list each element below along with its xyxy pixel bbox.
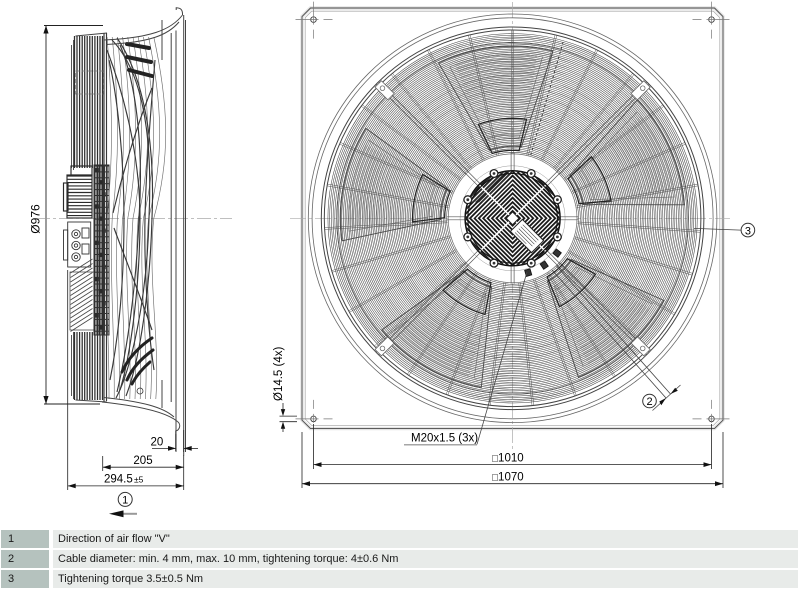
- svg-text:M20x1.5 (3x): M20x1.5 (3x): [411, 433, 478, 445]
- svg-text:294.5: 294.5: [104, 474, 133, 486]
- svg-text:3: 3: [745, 225, 751, 237]
- svg-text:Ø976: Ø976: [29, 204, 43, 234]
- svg-text:±5: ±5: [134, 475, 144, 485]
- svg-text:Ø14.5 (4x): Ø14.5 (4x): [273, 347, 285, 401]
- svg-text:2: 2: [646, 396, 652, 408]
- svg-text:□1070: □1070: [492, 472, 524, 484]
- svg-text:1: 1: [122, 495, 128, 507]
- svg-text:□1010: □1010: [492, 452, 524, 464]
- svg-text:20: 20: [151, 437, 164, 449]
- svg-text:205: 205: [133, 455, 152, 467]
